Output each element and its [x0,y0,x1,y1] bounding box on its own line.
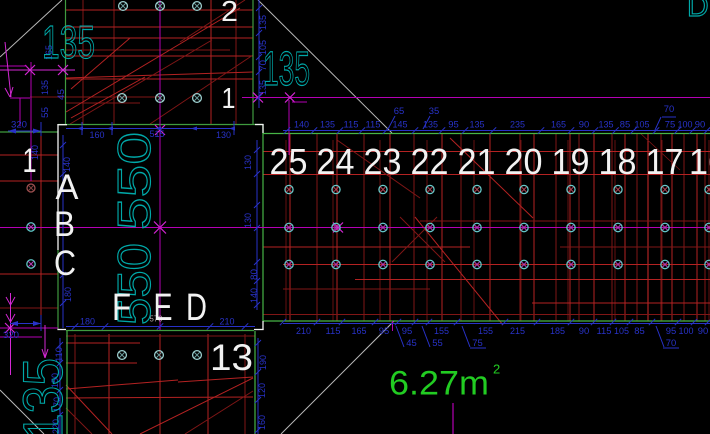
svg-text:320: 320 [11,120,27,131]
svg-text:B: B [54,205,75,244]
svg-text:160: 160 [90,130,105,141]
svg-text:16: 16 [689,141,710,182]
svg-text:45: 45 [56,89,67,100]
svg-text:2: 2 [221,0,238,28]
svg-text:C: C [54,244,76,283]
svg-text:E: E [154,287,173,329]
svg-text:100: 100 [678,120,693,131]
svg-text:24: 24 [317,141,355,182]
svg-text:550: 550 [108,132,160,230]
svg-text:115: 115 [597,326,612,337]
svg-text:23: 23 [364,141,402,182]
svg-text:135: 135 [320,120,335,131]
svg-text:165: 165 [352,326,367,337]
svg-text:90: 90 [695,120,706,131]
svg-text:135: 135 [263,43,310,96]
svg-text:100: 100 [679,326,694,337]
svg-text:22: 22 [411,141,449,182]
svg-text:A: A [56,168,80,207]
svg-text:160: 160 [257,415,268,430]
svg-text:115: 115 [344,120,359,131]
svg-text:D: D [687,0,709,23]
svg-text:155: 155 [434,326,449,337]
svg-text:130: 130 [243,213,254,228]
svg-text:155: 155 [478,326,493,337]
svg-text:215: 215 [510,326,525,337]
svg-text:135: 135 [258,15,269,30]
svg-text:70: 70 [664,104,675,115]
svg-text:185: 185 [550,326,565,337]
svg-text:18: 18 [599,141,637,182]
svg-text:19: 19 [552,141,590,182]
svg-text:135: 135 [599,120,614,131]
svg-text:140: 140 [249,288,260,303]
svg-text:105: 105 [614,326,629,337]
svg-text:210: 210 [220,317,235,328]
svg-text:90: 90 [579,120,590,131]
svg-text:85: 85 [634,326,645,337]
svg-text:165: 165 [551,120,566,131]
svg-text:1: 1 [222,83,236,115]
svg-text:180: 180 [63,287,74,302]
svg-text:45: 45 [406,338,417,349]
svg-text:17: 17 [646,141,684,182]
svg-text:320: 320 [3,330,19,341]
svg-text:D: D [186,287,207,329]
svg-text:135: 135 [11,358,74,434]
svg-text:90: 90 [698,326,709,337]
svg-text:75: 75 [665,120,676,131]
svg-text:70: 70 [666,338,677,349]
svg-text:35: 35 [429,106,440,117]
svg-text:13: 13 [210,337,253,378]
svg-text:180: 180 [80,317,95,328]
svg-text:95: 95 [379,326,390,337]
svg-text:95: 95 [448,120,459,131]
svg-text:90: 90 [579,326,590,337]
svg-text:235: 235 [510,120,525,131]
svg-text:135: 135 [470,120,485,131]
svg-text:190: 190 [258,355,269,370]
svg-text:140: 140 [294,120,309,131]
svg-text:55: 55 [432,338,443,349]
svg-text:130: 130 [243,155,254,170]
svg-text:210: 210 [296,326,311,337]
svg-text:105: 105 [635,120,650,131]
svg-text:20: 20 [505,141,543,182]
svg-text:21: 21 [458,141,496,182]
svg-text:135: 135 [40,80,51,95]
svg-text:115: 115 [326,326,341,337]
svg-text:145: 145 [393,120,408,131]
svg-text:130: 130 [216,130,231,141]
svg-text:135: 135 [42,16,95,68]
svg-text:2: 2 [493,362,500,377]
svg-text:80: 80 [249,269,260,280]
svg-text:65: 65 [394,106,405,117]
svg-text:95: 95 [402,326,413,337]
svg-text:95: 95 [666,326,677,337]
svg-text:75: 75 [472,338,483,349]
svg-text:85: 85 [620,120,631,131]
svg-text:115: 115 [366,120,381,131]
svg-text:55: 55 [40,107,51,118]
svg-text:25: 25 [270,141,308,182]
svg-text:120: 120 [257,383,268,398]
svg-text:1: 1 [23,142,37,180]
svg-text:F: F [112,287,131,329]
svg-text:6.27m: 6.27m [389,365,489,403]
